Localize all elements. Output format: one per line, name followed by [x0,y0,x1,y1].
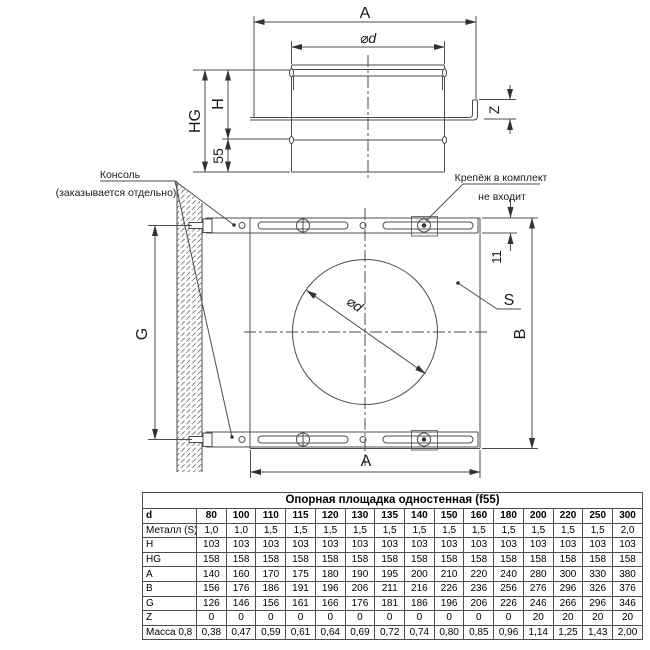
cell-value: 1,5 [286,523,316,538]
row-label: G [143,596,197,611]
cell-value: 191 [286,581,316,596]
cell-value: 140 [197,567,227,582]
cell-value: 380 [613,567,643,582]
cell-value: 0,59 [256,625,286,640]
cell-value: 0,85 [464,625,494,640]
cell-value: 296 [553,581,583,596]
cell-value: 156 [197,581,227,596]
cell-value: 240 [494,567,524,582]
dim-label-B: B [512,329,529,340]
row-label: HG [143,552,197,567]
row-label: Масса 0,8 [143,625,197,640]
cell-value: 158 [553,552,583,567]
cell-value: 160 [226,567,256,582]
side-view [193,16,516,180]
cell-value: 0,69 [345,625,375,640]
cell-value: 0 [405,611,435,626]
table-row: Металл (S)1,01,01,51,51,51,51,51,51,51,5… [143,523,643,538]
cell-value: 158 [613,552,643,567]
header-value: 150 [434,509,464,524]
cell-value: 0,96 [494,625,524,640]
table-header-row: d801001101151201301351401501601802002202… [143,509,643,524]
support-plate-side [250,100,478,120]
cell-value: 211 [375,581,405,596]
cell-value: 103 [286,538,316,553]
cell-value: 1,5 [523,523,553,538]
cell-value: 103 [434,538,464,553]
dim-label-HG: HG [187,109,204,133]
row-label: Металл (S) [143,523,197,538]
cell-value: 1,5 [405,523,435,538]
cell-value: 103 [405,538,435,553]
cell-value: 158 [464,552,494,567]
spec-table: Опорная площадка одностенная (f55)d80100… [142,492,643,640]
cell-value: 158 [434,552,464,567]
header-value: 180 [494,509,524,524]
cell-value: 0 [256,611,286,626]
cell-value: 1,43 [583,625,613,640]
cell-value: 170 [256,567,286,582]
cell-value: 1,5 [494,523,524,538]
cell-value: 186 [405,596,435,611]
header-value: 80 [197,509,227,524]
cell-value: 103 [375,538,405,553]
cell-value: 1,14 [523,625,553,640]
cell-value: 158 [345,552,375,567]
table-row: Z0000000000020202020 [143,611,643,626]
dim-label-Z: Z [486,105,502,114]
header-value: 140 [405,509,435,524]
cell-value: 0,72 [375,625,405,640]
cell-value: 256 [494,581,524,596]
fasteners-label-line1: Крепёж в комплект [455,172,548,184]
cell-value: 1,5 [553,523,583,538]
cell-value: 20 [613,611,643,626]
table-title: Опорная площадка одностенная (f55) [143,493,643,509]
cell-value: 158 [286,552,316,567]
row-label: A [143,567,197,582]
cell-value: 0 [375,611,405,626]
header-value: 160 [464,509,494,524]
cell-value: 161 [286,596,316,611]
cell-value: 346 [613,596,643,611]
header-value: 200 [523,509,553,524]
cell-value: 186 [256,581,286,596]
cell-value: 226 [434,581,464,596]
dim-label-phid-side: ⌀d [360,30,377,46]
cell-value: 103 [315,538,345,553]
cell-value: 0 [197,611,227,626]
cell-value: 330 [583,567,613,582]
cell-value: 296 [583,596,613,611]
dim-label-G: G [134,328,151,340]
anchor-bolt-head [203,219,212,233]
cell-value: 158 [315,552,345,567]
cell-value: 103 [494,538,524,553]
technical-drawing-page: A ⌀d HG H 55 Z [0,0,650,650]
dim-label-A-front: A [361,453,372,470]
row-label: B [143,581,197,596]
cell-value: 158 [256,552,286,567]
cell-value: 1,5 [583,523,613,538]
cell-value: 103 [613,538,643,553]
table-row: A140160170175180190195200210220240280300… [143,567,643,582]
fasteners-label-line2: не входит [478,191,526,203]
cell-value: 0 [226,611,256,626]
cell-value: 166 [315,596,345,611]
table-row: H103103103103103103103103103103103103103… [143,538,643,553]
cell-value: 0 [315,611,345,626]
cell-value: 1,5 [256,523,286,538]
cell-value: 103 [345,538,375,553]
cell-value: 20 [553,611,583,626]
bracket-slot [383,436,473,443]
cell-value: 376 [613,581,643,596]
console-label-line2: (заказывается отдельно) [56,187,177,199]
cell-value: 1,5 [345,523,375,538]
cell-value: 2,0 [613,523,643,538]
header-value: 120 [315,509,345,524]
dim-11 [482,198,517,251]
console-leaders [100,181,236,439]
cell-value: 200 [405,567,435,582]
cell-value: 1,5 [434,523,464,538]
row-label: Z [143,611,197,626]
dim-H [222,70,290,139]
console-label-line1: Консоль [100,169,141,181]
header-value: 135 [375,509,405,524]
cell-value: 226 [494,596,524,611]
cell-value: 300 [553,567,583,582]
cell-value: 158 [583,552,613,567]
header-value: 130 [345,509,375,524]
cell-value: 175 [286,567,316,582]
table-row: Масса 0,80,380,470,590,610,640,690,720,7… [143,625,643,640]
cell-value: 158 [523,552,553,567]
header-value: 220 [553,509,583,524]
cell-value: 190 [345,567,375,582]
header-value: 300 [613,509,643,524]
cell-value: 1,5 [375,523,405,538]
cell-value: 216 [405,581,435,596]
cell-value: 0,61 [286,625,316,640]
header-label: d [143,509,197,524]
cell-value: 206 [345,581,375,596]
cell-value: 210 [434,567,464,582]
cell-value: 236 [464,581,494,596]
cell-value: 0,38 [197,625,227,640]
dim-label-S: S [504,292,515,309]
header-value: 250 [583,509,613,524]
cell-value: 1,25 [553,625,583,640]
cell-value: 180 [315,567,345,582]
dim-label-phid-front: ⌀d [344,293,367,316]
cell-value: 181 [375,596,405,611]
dim-label-H: H [210,98,227,110]
cell-value: 195 [375,567,405,582]
cell-value: 0,74 [405,625,435,640]
header-value: 115 [286,509,316,524]
cell-value: 103 [464,538,494,553]
cell-value: 20 [523,611,553,626]
anchor-bolt-head [203,433,212,447]
cell-value: 103 [553,538,583,553]
cell-value: 176 [226,581,256,596]
dim-HG [193,70,290,172]
table-row: G126146156161166176181186196206226246266… [143,596,643,611]
cell-value: 103 [226,538,256,553]
cell-value: 103 [256,538,286,553]
table-title-row: Опорная площадка одностенная (f55) [143,493,643,509]
cell-value: 246 [523,596,553,611]
header-value: 110 [256,509,286,524]
cell-value: 103 [523,538,553,553]
cell-value: 0 [464,611,494,626]
row-label: H [143,538,197,553]
front-view [100,181,540,478]
cell-value: 158 [405,552,435,567]
cell-value: 0 [286,611,316,626]
cell-value: 0,64 [315,625,345,640]
dim-label-11: 11 [489,250,504,264]
cell-value: 0 [434,611,464,626]
cell-value: 276 [523,581,553,596]
cell-value: 2,00 [613,625,643,640]
bracket-slot [383,222,473,229]
cell-value: 0 [494,611,524,626]
drawing-views: A ⌀d HG H 55 Z [0,0,650,490]
table-row: HG15815815815815815815815815815815815815… [143,552,643,567]
cell-value: 176 [345,596,375,611]
cell-value: 156 [256,596,286,611]
cell-value: 158 [226,552,256,567]
cell-value: 158 [375,552,405,567]
cell-value: 266 [553,596,583,611]
cell-value: 1,0 [197,523,227,538]
header-value: 100 [226,509,256,524]
cell-value: 196 [315,581,345,596]
cell-value: 280 [523,567,553,582]
cell-value: 103 [583,538,613,553]
dim-label-A-side: A [360,5,371,22]
cell-value: 146 [226,596,256,611]
cell-value: 1,5 [315,523,345,538]
bracket-hole [239,223,245,229]
cell-value: 1,0 [226,523,256,538]
cell-value: 326 [583,581,613,596]
dim-label-55: 55 [210,148,226,164]
cell-value: 158 [494,552,524,567]
table-row: B156176186191196206211216226236256276296… [143,581,643,596]
spec-table-body: Опорная площадка одностенная (f55)d80100… [143,493,643,640]
cell-value: 0,47 [226,625,256,640]
cell-value: 220 [464,567,494,582]
cell-value: 0,80 [434,625,464,640]
mounting-bracket-top [189,217,480,237]
cell-value: 103 [197,538,227,553]
cell-value: 206 [464,596,494,611]
cell-value: 126 [197,596,227,611]
cell-value: 20 [583,611,613,626]
cell-value: 196 [434,596,464,611]
cell-value: 158 [197,552,227,567]
cell-value: 0 [345,611,375,626]
cell-value: 1,5 [464,523,494,538]
bracket-hole [239,437,245,443]
mounting-bracket-bottom [189,431,478,451]
